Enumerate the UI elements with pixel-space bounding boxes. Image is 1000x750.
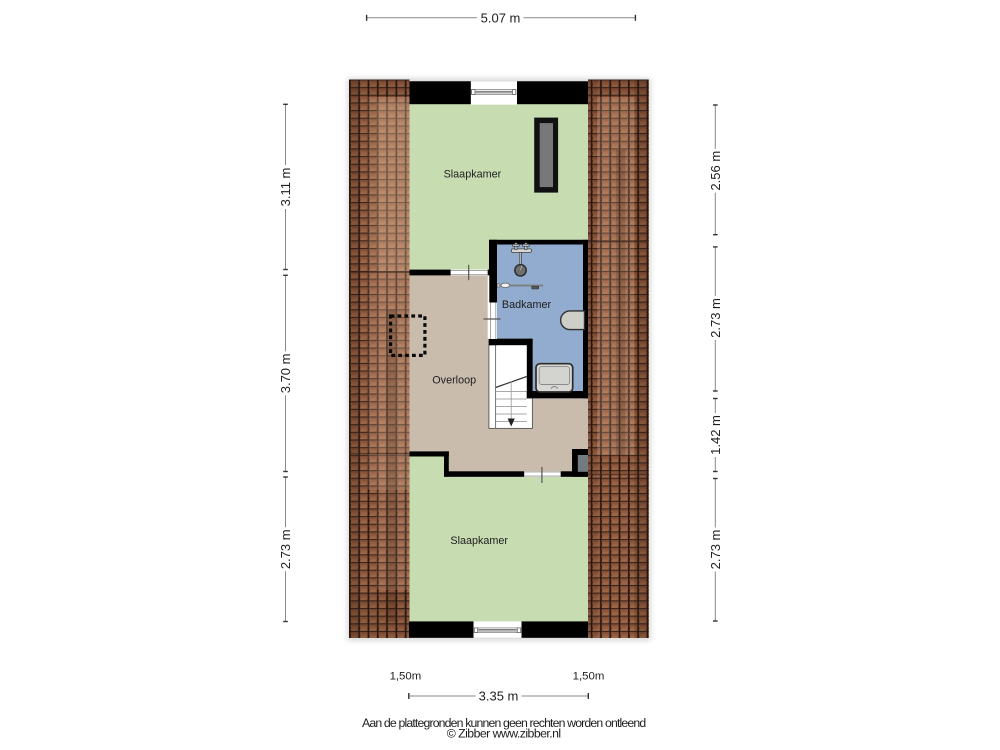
- svg-text:Overloop: Overloop: [432, 375, 476, 387]
- svg-text:Slaapkamer: Slaapkamer: [450, 535, 508, 547]
- svg-text:Badkamer: Badkamer: [502, 299, 552, 311]
- svg-text:5.07 m: 5.07 m: [481, 10, 521, 25]
- svg-text:1,50m: 1,50m: [390, 671, 422, 683]
- svg-text:© Zibber www.zibber.nl: © Zibber www.zibber.nl: [447, 727, 561, 741]
- svg-text:3.70 m: 3.70 m: [278, 354, 293, 394]
- svg-text:Slaapkamer: Slaapkamer: [444, 168, 502, 180]
- svg-text:2.73 m: 2.73 m: [708, 530, 723, 570]
- svg-text:3.35 m: 3.35 m: [479, 689, 519, 704]
- svg-text:2.73 m: 2.73 m: [278, 529, 293, 569]
- svg-text:2.73 m: 2.73 m: [708, 298, 723, 338]
- svg-text:1.42 m: 1.42 m: [708, 415, 723, 455]
- svg-text:3.11 m: 3.11 m: [278, 168, 293, 207]
- svg-text:1,50m: 1,50m: [573, 671, 605, 683]
- svg-text:2.56 m: 2.56 m: [708, 151, 723, 191]
